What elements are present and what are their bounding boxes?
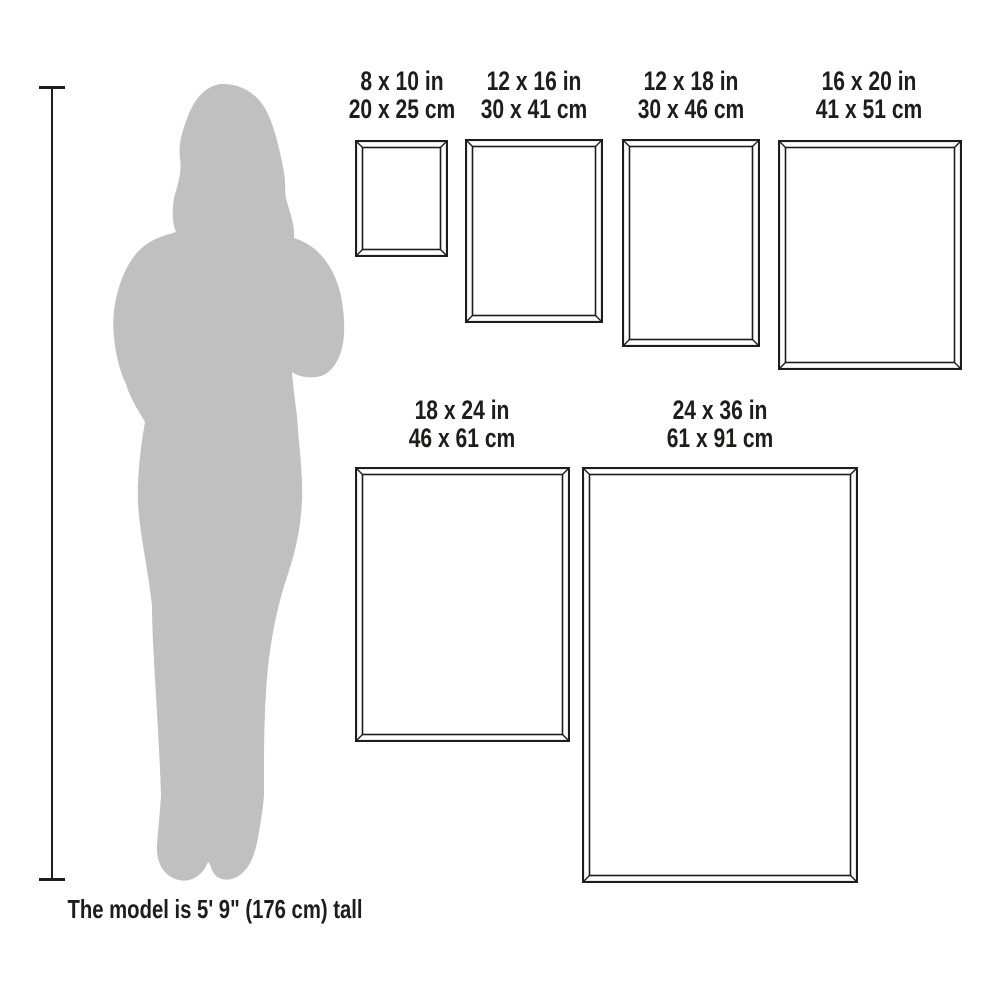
frame-size-cm: 30 x 41 cm <box>481 95 588 123</box>
frame-outer-edge <box>356 468 569 741</box>
frame-24x36 <box>582 467 858 883</box>
frame-size-in: 8 x 10 in <box>349 67 456 95</box>
frame-outer-edge <box>583 468 857 882</box>
frame-size-cm: 61 x 91 cm <box>667 424 774 452</box>
ruler-bottom-cap <box>39 878 65 881</box>
model-height-caption: The model is 5' 9" (176 cm) tall <box>67 894 362 924</box>
frame-size-in: 16 x 20 in <box>816 67 923 95</box>
ruler-vertical-line <box>51 87 53 879</box>
frame-8x10 <box>355 140 448 257</box>
frame-size-cm: 41 x 51 cm <box>816 95 923 123</box>
frame-size-cm: 46 x 61 cm <box>409 424 516 452</box>
frame-outer-edge <box>779 141 961 369</box>
frame-label-8x10: 8 x 10 in 20 x 25 cm <box>334 67 471 123</box>
frame-size-cm: 30 x 46 cm <box>638 95 745 123</box>
frame-outer-edge <box>356 141 447 256</box>
size-comparison-diagram: 8 x 10 in 20 x 25 cm 12 x 16 in 30 x 41 … <box>0 0 1000 1000</box>
frame-label-12x16: 12 x 16 in 30 x 41 cm <box>466 67 603 123</box>
frame-12x16 <box>465 139 603 323</box>
model-silhouette <box>90 80 350 890</box>
frame-label-18x24: 18 x 24 in 46 x 61 cm <box>394 396 531 452</box>
frame-18x24 <box>355 467 570 742</box>
frame-outer-edge <box>623 140 759 346</box>
model-silhouette-shape <box>113 84 344 881</box>
frame-size-cm: 20 x 25 cm <box>349 95 456 123</box>
frame-label-12x18: 12 x 18 in 30 x 46 cm <box>623 67 760 123</box>
frame-size-in: 12 x 16 in <box>481 67 588 95</box>
frame-size-in: 18 x 24 in <box>409 396 516 424</box>
frame-label-24x36: 24 x 36 in 61 x 91 cm <box>652 396 789 452</box>
model-height-caption-wrap: The model is 5' 9" (176 cm) tall <box>26 894 404 924</box>
frame-size-in: 24 x 36 in <box>667 396 774 424</box>
frame-size-in: 12 x 18 in <box>638 67 745 95</box>
frame-12x18 <box>622 139 760 347</box>
frame-outer-edge <box>466 140 602 322</box>
frame-16x20 <box>778 140 962 370</box>
frame-label-16x20: 16 x 20 in 41 x 51 cm <box>801 67 938 123</box>
